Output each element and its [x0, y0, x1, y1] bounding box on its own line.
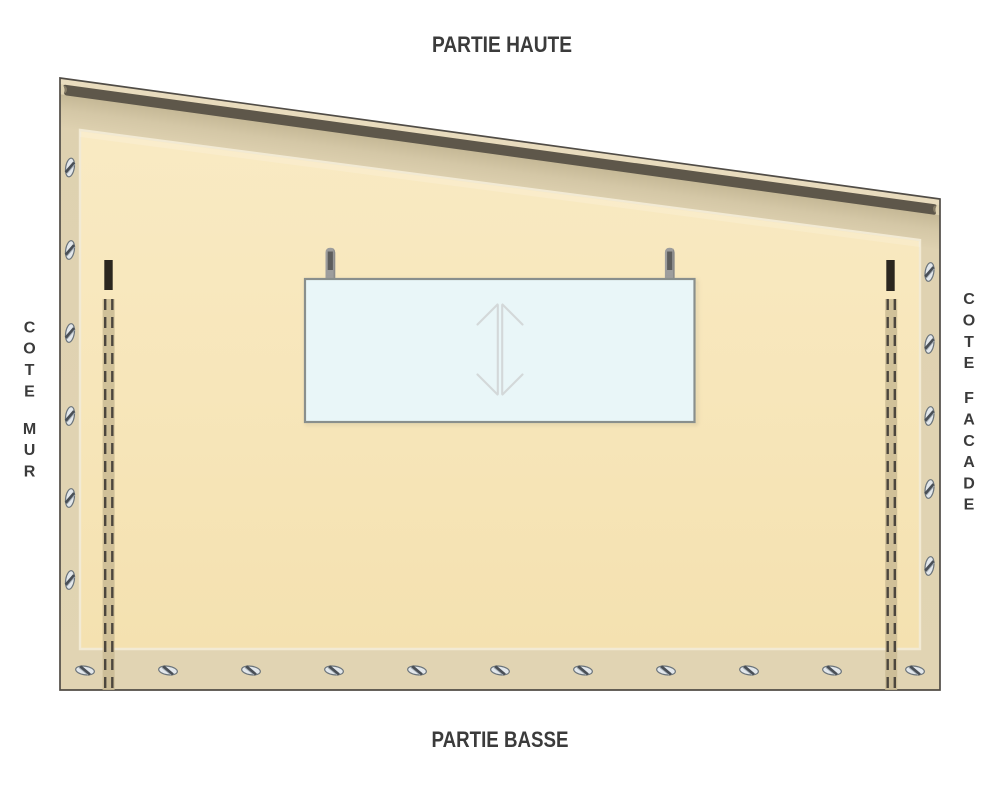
svg-text:T: T: [964, 334, 974, 351]
svg-text:E: E: [964, 497, 975, 514]
svg-text:F: F: [964, 390, 974, 407]
svg-text:A: A: [963, 412, 975, 429]
svg-text:PARTIE HAUTE: PARTIE HAUTE: [432, 32, 572, 57]
svg-text:E: E: [964, 355, 975, 372]
svg-text:O: O: [23, 341, 35, 358]
svg-text:C: C: [24, 319, 36, 336]
svg-text:U: U: [24, 442, 36, 459]
svg-text:PARTIE BASSE: PARTIE BASSE: [432, 727, 569, 752]
svg-text:C: C: [963, 291, 975, 308]
svg-text:A: A: [963, 454, 975, 471]
svg-text:M: M: [23, 421, 36, 438]
svg-text:D: D: [963, 475, 975, 492]
svg-text:T: T: [25, 362, 35, 379]
svg-text:E: E: [24, 383, 35, 400]
svg-text:R: R: [24, 464, 36, 481]
svg-text:O: O: [963, 313, 975, 330]
svg-text:C: C: [963, 433, 975, 450]
